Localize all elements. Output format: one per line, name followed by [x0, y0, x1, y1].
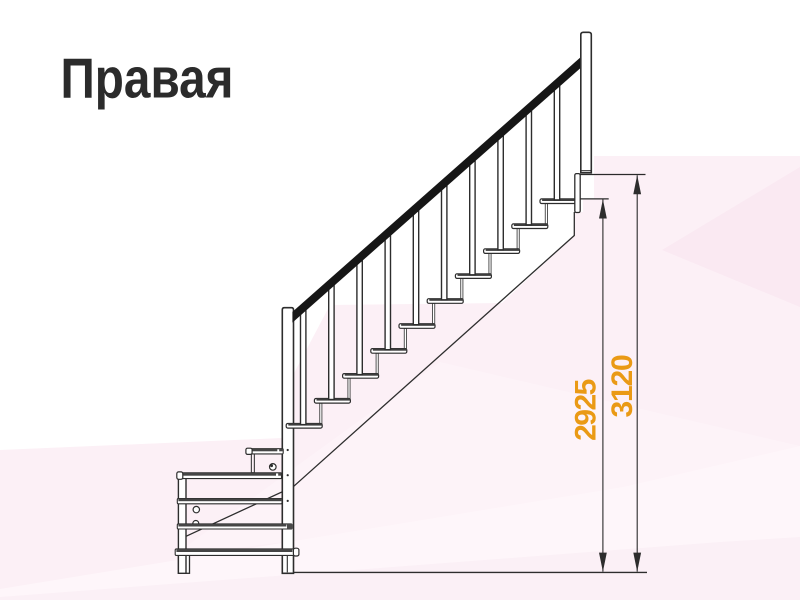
- svg-text:3120: 3120: [606, 355, 639, 417]
- svg-text:2925: 2925: [570, 379, 603, 441]
- svg-text:Правая: Правая: [61, 47, 234, 111]
